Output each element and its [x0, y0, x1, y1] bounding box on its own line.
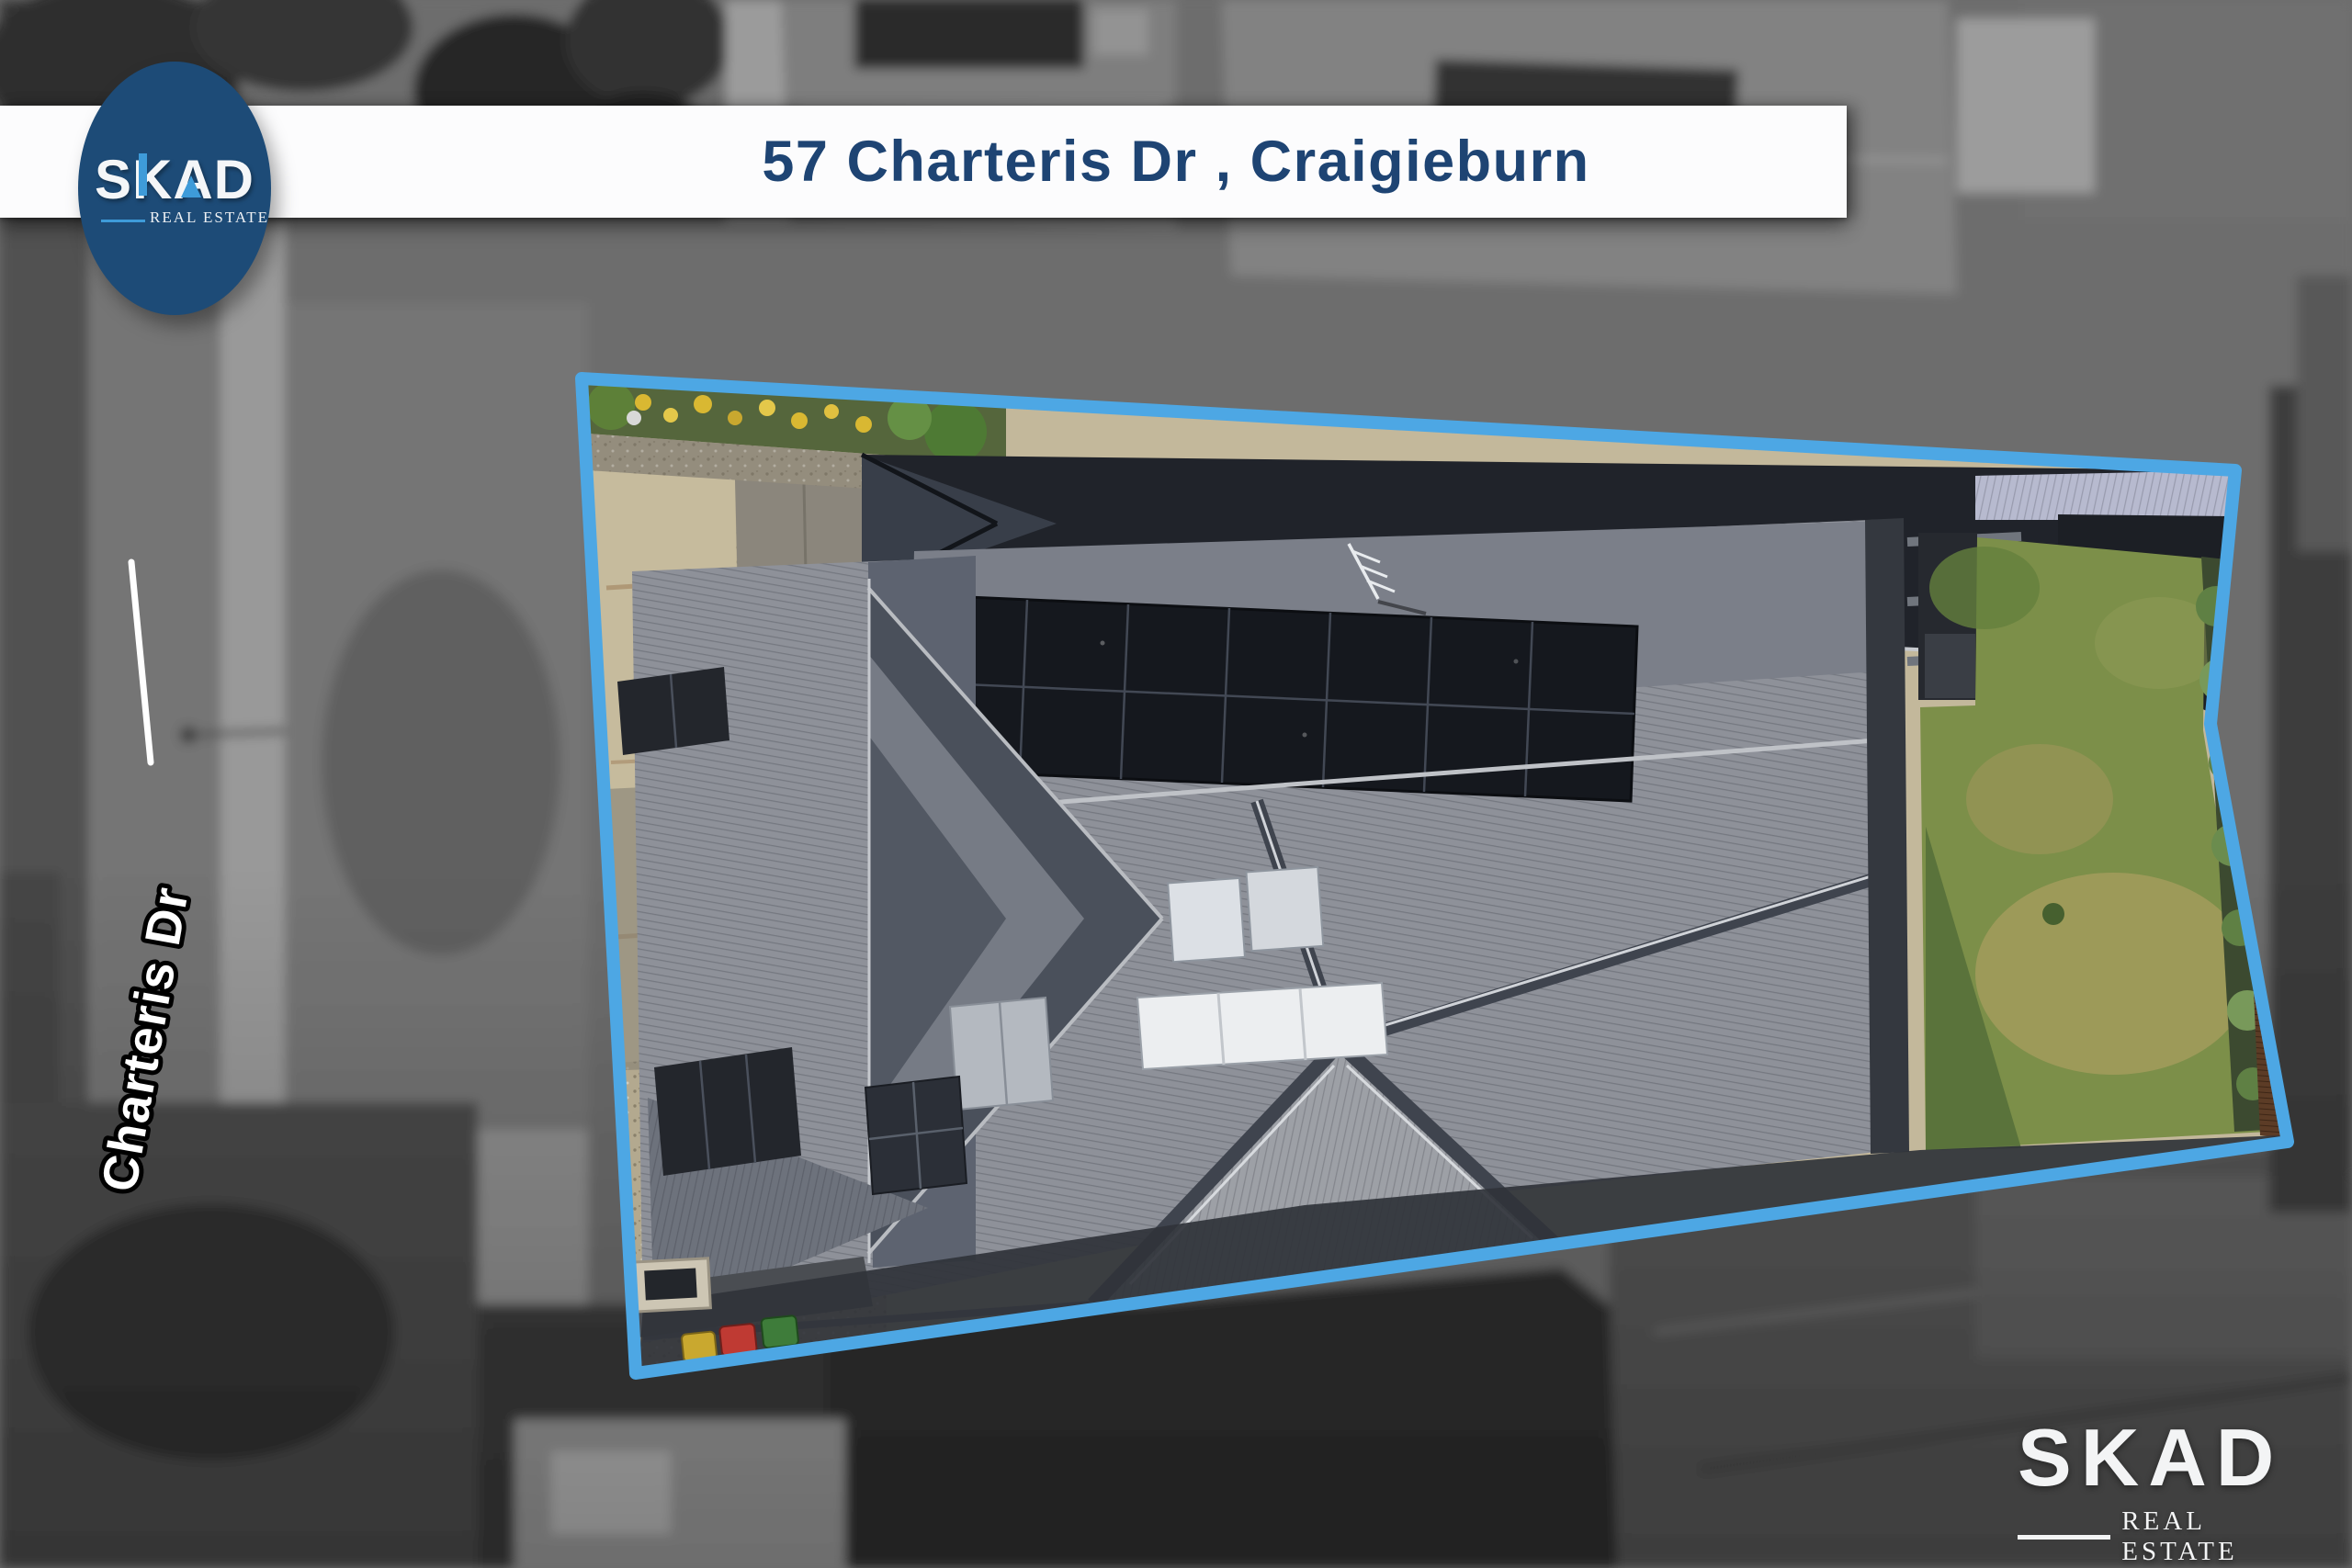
- logo-a-accent-icon: [181, 175, 201, 197]
- watermark-name: SKAD: [2018, 1411, 2330, 1505]
- title-banner: [0, 106, 1847, 218]
- watermark-logo: SKAD REAL ESTATE: [2018, 1411, 2330, 1567]
- brand-badge-name: SKAD: [78, 148, 271, 211]
- aerial-photo: Charteris Dr: [0, 0, 2352, 1568]
- water-feature: [631, 1258, 711, 1312]
- logo-k-accent: [139, 153, 147, 196]
- flyer-canvas: Charteris Dr 57 Charteris Dr , Craigiebu…: [0, 0, 2352, 1568]
- watermark-underline: [2018, 1535, 2110, 1540]
- brand-badge-tagline: REAL ESTATE: [150, 209, 269, 227]
- logo-underline: [101, 220, 145, 222]
- watermark-tagline: REAL ESTATE: [2121, 1506, 2330, 1567]
- brand-badge: SKAD REAL ESTATE: [78, 62, 271, 315]
